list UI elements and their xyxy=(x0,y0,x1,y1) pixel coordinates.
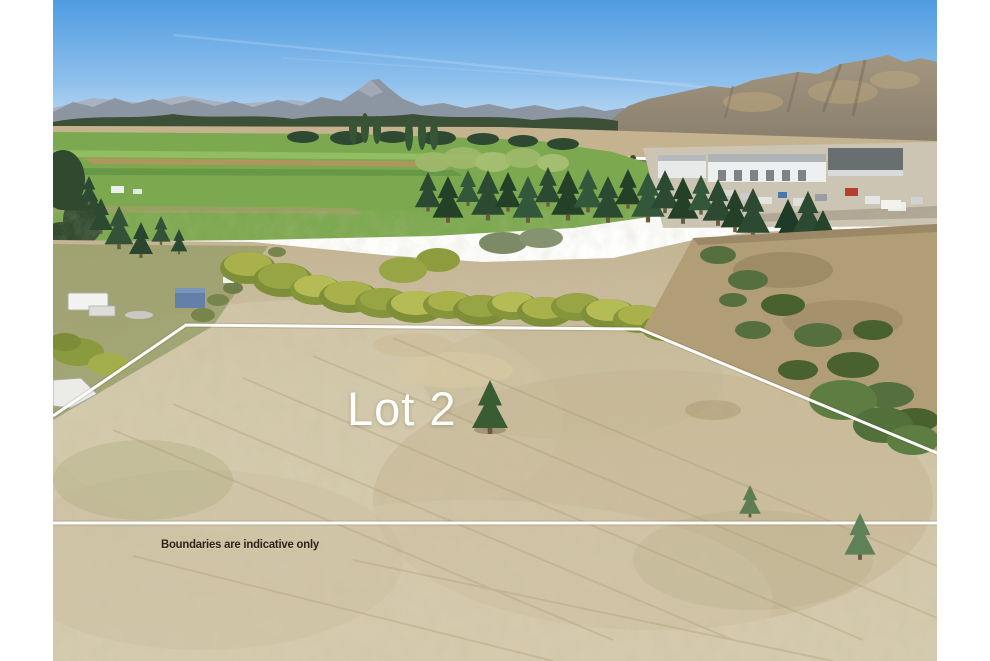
aerial-photo: Lot 2 Boundaries are indicative only xyxy=(53,0,937,661)
left-white-margin xyxy=(0,0,53,661)
right-white-margin xyxy=(937,0,990,661)
page: Lot 2 Boundaries are indicative only xyxy=(0,0,990,661)
lot-label: Lot 2 xyxy=(347,381,457,436)
shipping-container-blue xyxy=(175,288,205,308)
boundary-disclaimer: Boundaries are indicative only xyxy=(161,537,319,551)
